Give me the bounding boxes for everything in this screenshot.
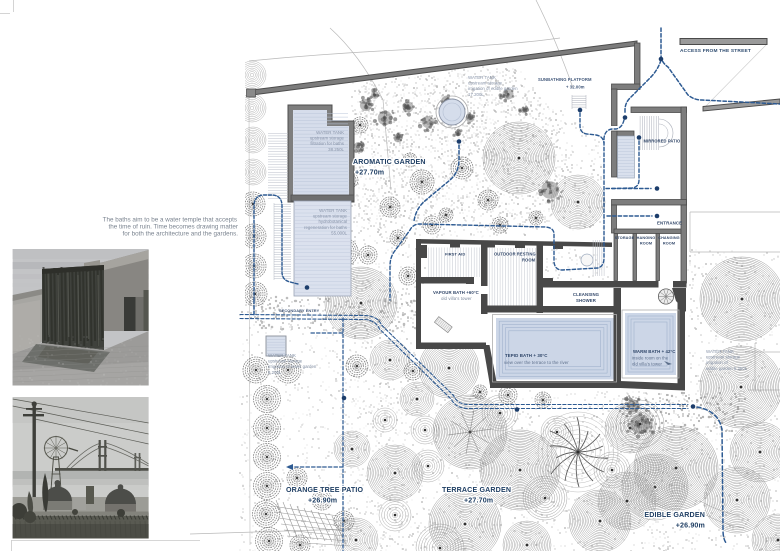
svg-text:for both the architecture and: for both the architecture and the garden… xyxy=(122,231,238,238)
svg-text:The baths aim to be a water te: The baths aim to be a water temple that … xyxy=(103,217,237,224)
svg-text:the time of ruin. Time becomes: the time of ruin. Time becomes drawing m… xyxy=(109,224,239,231)
